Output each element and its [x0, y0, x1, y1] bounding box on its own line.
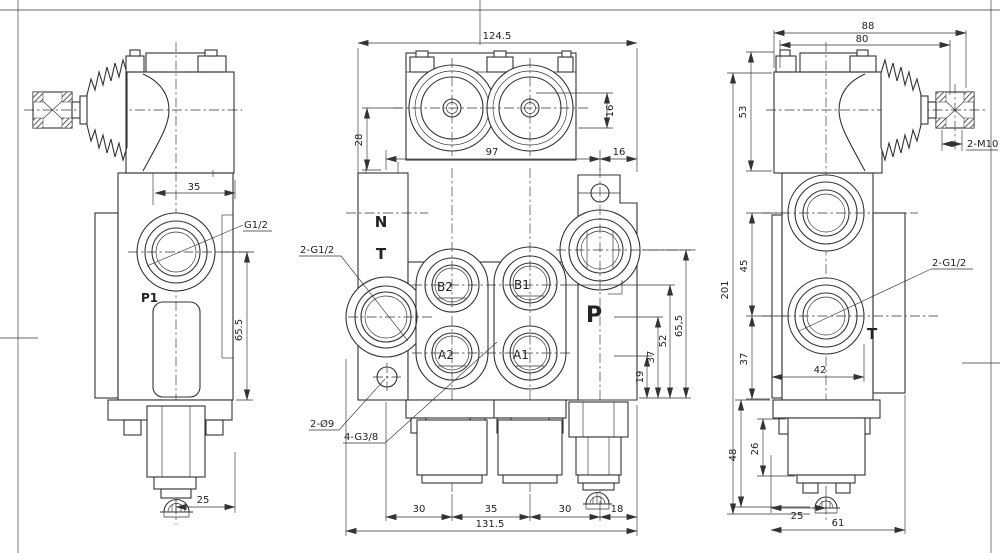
- relief-valve-left: [108, 400, 232, 517]
- dim-30b: 30: [559, 504, 572, 515]
- label-g12-left: G1/2: [244, 220, 268, 231]
- dim-37-front: 37: [646, 351, 657, 364]
- relief-valve-front: [569, 402, 628, 509]
- bolt-head: [126, 56, 144, 72]
- label-2-d9: 2-Ø9: [310, 418, 334, 430]
- bolt-head: [850, 56, 876, 72]
- dim-65-5-left: 65.5: [234, 319, 245, 341]
- dim-88: 88: [862, 21, 875, 32]
- dim-42: 42: [814, 365, 827, 376]
- mounting-slot: [153, 302, 200, 397]
- dim-26: 26: [750, 443, 761, 456]
- dim-35-left: 35: [188, 182, 201, 193]
- label-a1: A1: [513, 348, 529, 362]
- dim-65-5-front: 65,5: [674, 315, 685, 337]
- label-p: P: [586, 303, 602, 328]
- dim-61: 61: [832, 518, 845, 529]
- dim-52: 52: [658, 335, 669, 348]
- valve-body-right: [762, 173, 938, 400]
- dim-28: 28: [354, 134, 365, 147]
- label-2-m10: 2-M10: [967, 139, 998, 150]
- dim-97: 97: [486, 147, 499, 158]
- dim-37-right: 37: [739, 353, 750, 366]
- dim-48: 48: [728, 449, 739, 462]
- control-lever-left: [24, 42, 242, 524]
- spool-cap-right: [773, 400, 880, 513]
- label-b2: B2: [437, 280, 453, 294]
- valve-body-left: [95, 173, 254, 400]
- front-view: N T B2 B1 A2 A1 P 2-G1/2 2-Ø9 4-G3/8 65,…: [299, 162, 696, 536]
- dim-53: 53: [738, 106, 749, 119]
- dim-16-top: 16: [605, 105, 616, 118]
- relief-hex-nut: [147, 406, 205, 477]
- valve-drawing: 35 G1/2 P1 65.5 25: [0, 0, 1000, 553]
- label-a2: A2: [438, 348, 454, 362]
- rubber-boot: [881, 60, 921, 160]
- dim-131-5: 131.5: [476, 519, 505, 530]
- dim-30a: 30: [413, 504, 426, 515]
- label-b1: B1: [514, 278, 530, 292]
- spool-cap-2: [494, 400, 566, 483]
- dim-35-front: 35: [485, 504, 498, 515]
- dim-124-5: 124.5: [483, 31, 512, 42]
- label-t-right: T: [867, 325, 878, 343]
- dim-18: 18: [611, 504, 624, 515]
- label-t-front: T: [376, 245, 387, 263]
- dim-16-side: 16: [613, 147, 626, 158]
- bolt-head: [198, 56, 226, 72]
- rubber-boot: [87, 60, 127, 160]
- label-2-g12-right: 2-G1/2: [932, 258, 966, 269]
- dim-45: 45: [739, 260, 750, 273]
- side-view-left: 35 G1/2 P1 65.5 25: [24, 42, 272, 524]
- bolt-head: [776, 56, 796, 72]
- hex-nut: [410, 57, 434, 72]
- label-2-g12: 2-G1/2: [300, 245, 334, 256]
- dim-25-right: 25: [791, 511, 804, 522]
- label-p1: P1: [141, 291, 158, 305]
- spool-housing-left: [126, 50, 234, 177]
- top-view: 124.5 28 16 97 16: [354, 31, 637, 173]
- label-n: N: [375, 213, 388, 231]
- side-view-right: 88 80 53 2-M10 201 45 37 42 2-G1/2 T 48 …: [720, 21, 998, 534]
- dim-201: 201: [720, 280, 731, 299]
- label-4-g38: 4-G3/8: [344, 432, 378, 443]
- dim-80: 80: [856, 34, 869, 45]
- dim-25-left: 25: [197, 495, 210, 506]
- spool-housing-right: [774, 50, 882, 173]
- drawing-sheet: 35 G1/2 P1 65.5 25: [0, 0, 1000, 553]
- hex-nut: [487, 57, 513, 72]
- dim-19: 19: [635, 371, 646, 384]
